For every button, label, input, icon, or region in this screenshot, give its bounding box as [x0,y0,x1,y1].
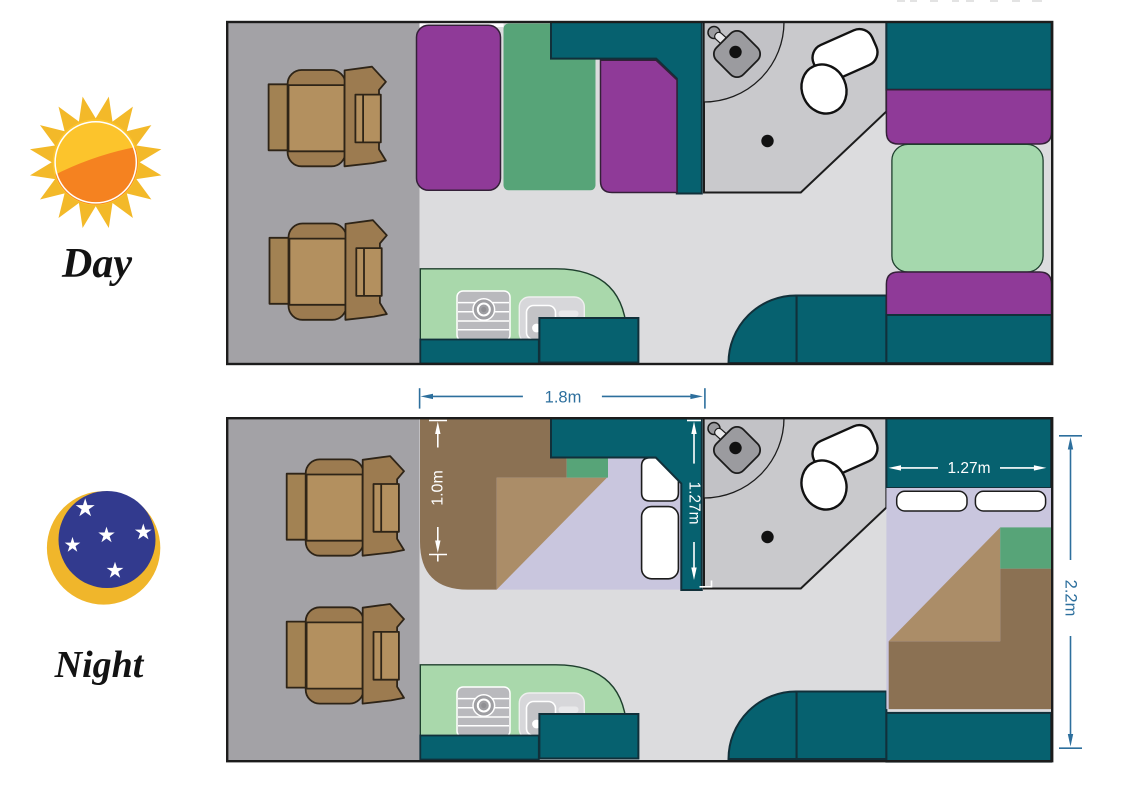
svg-text:Day: Day [61,241,132,287]
svg-text:Night: Night [54,644,145,686]
svg-text:1.27m: 1.27m [947,460,990,477]
svg-text:2.2m: 2.2m [1062,580,1080,617]
svg-text:1.27m: 1.27m [686,481,703,524]
svg-text:1.0m: 1.0m [429,470,446,506]
svg-text:1.8m: 1.8m [545,388,582,406]
